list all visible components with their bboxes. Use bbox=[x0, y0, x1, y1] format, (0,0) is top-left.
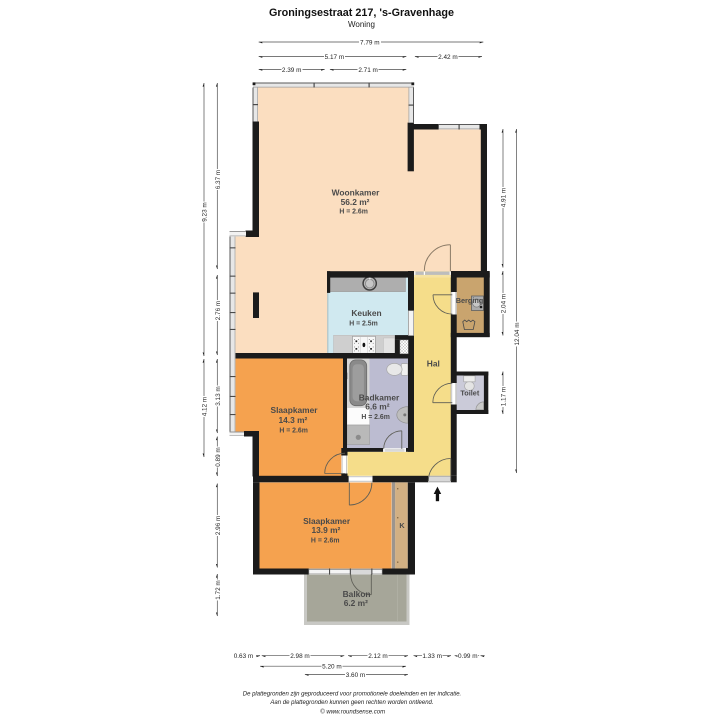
svg-text:0.63 m: 0.63 m bbox=[234, 653, 254, 660]
svg-text:1.17 m: 1.17 m bbox=[501, 387, 508, 407]
svg-text:4.91 m: 4.91 m bbox=[501, 188, 508, 208]
svg-text:0.99 m: 0.99 m bbox=[458, 653, 478, 660]
svg-text:H = 2.6m: H = 2.6m bbox=[339, 208, 368, 215]
svg-text:2.71 m: 2.71 m bbox=[358, 67, 378, 74]
svg-text:3.13 m: 3.13 m bbox=[215, 386, 222, 406]
svg-text:3.60 m: 3.60 m bbox=[346, 672, 366, 679]
svg-text:2.98 m: 2.98 m bbox=[290, 653, 310, 660]
svg-text:0.89 m: 0.89 m bbox=[215, 447, 222, 467]
svg-text:2.76 m: 2.76 m bbox=[215, 301, 222, 321]
svg-text:6.6 m²: 6.6 m² bbox=[365, 402, 389, 412]
svg-text:2.96 m: 2.96 m bbox=[215, 516, 222, 536]
svg-text:13.9 m²: 13.9 m² bbox=[311, 525, 340, 535]
svg-text:Slaapkamer: Slaapkamer bbox=[270, 405, 318, 415]
svg-text:Toilet: Toilet bbox=[460, 388, 479, 397]
svg-text:2.12 m: 2.12 m bbox=[368, 653, 388, 660]
svg-text:Aan de plattegronden kunnen ge: Aan de plattegronden kunnen geen rechten… bbox=[269, 700, 433, 706]
svg-text:Groningsestraat 217, 's-Graven: Groningsestraat 217, 's-Gravenhage bbox=[269, 7, 454, 19]
svg-text:© www.roundsense.com: © www.roundsense.com bbox=[320, 708, 385, 715]
svg-text:H = 2.6m: H = 2.6m bbox=[279, 428, 308, 435]
svg-text:6.37 m: 6.37 m bbox=[215, 170, 222, 190]
svg-text:2.04 m: 2.04 m bbox=[501, 294, 508, 314]
svg-text:14.3 m²: 14.3 m² bbox=[278, 415, 307, 425]
svg-text:6.2 m²: 6.2 m² bbox=[344, 598, 368, 608]
svg-text:Hal: Hal bbox=[427, 359, 440, 369]
svg-text:5.17 m: 5.17 m bbox=[325, 54, 345, 61]
svg-text:H = 2.6m: H = 2.6m bbox=[311, 538, 340, 545]
svg-text:1.33 m: 1.33 m bbox=[422, 653, 442, 660]
svg-text:H = 2.5m: H = 2.5m bbox=[349, 320, 378, 327]
svg-text:4.12 m: 4.12 m bbox=[202, 397, 209, 417]
svg-text:1.72 m: 1.72 m bbox=[215, 580, 222, 600]
svg-text:2.39 m: 2.39 m bbox=[282, 67, 302, 74]
svg-text:5.20 m: 5.20 m bbox=[322, 664, 342, 671]
svg-text:2.42 m: 2.42 m bbox=[438, 54, 458, 61]
svg-text:Berging: Berging bbox=[456, 296, 484, 305]
svg-text:K: K bbox=[399, 521, 405, 530]
svg-text:H = 2.6m: H = 2.6m bbox=[361, 414, 390, 421]
svg-text:Keuken: Keuken bbox=[351, 308, 381, 318]
svg-text:56.2 m²: 56.2 m² bbox=[341, 197, 370, 207]
svg-text:9.23 m: 9.23 m bbox=[202, 202, 209, 222]
svg-text:7.79 m: 7.79 m bbox=[360, 40, 380, 47]
svg-text:Woning: Woning bbox=[348, 20, 375, 29]
svg-text:De plattegronden zijn geproduc: De plattegronden zijn geproduceerd voor … bbox=[243, 691, 461, 697]
svg-text:12.04 m: 12.04 m bbox=[514, 322, 521, 345]
